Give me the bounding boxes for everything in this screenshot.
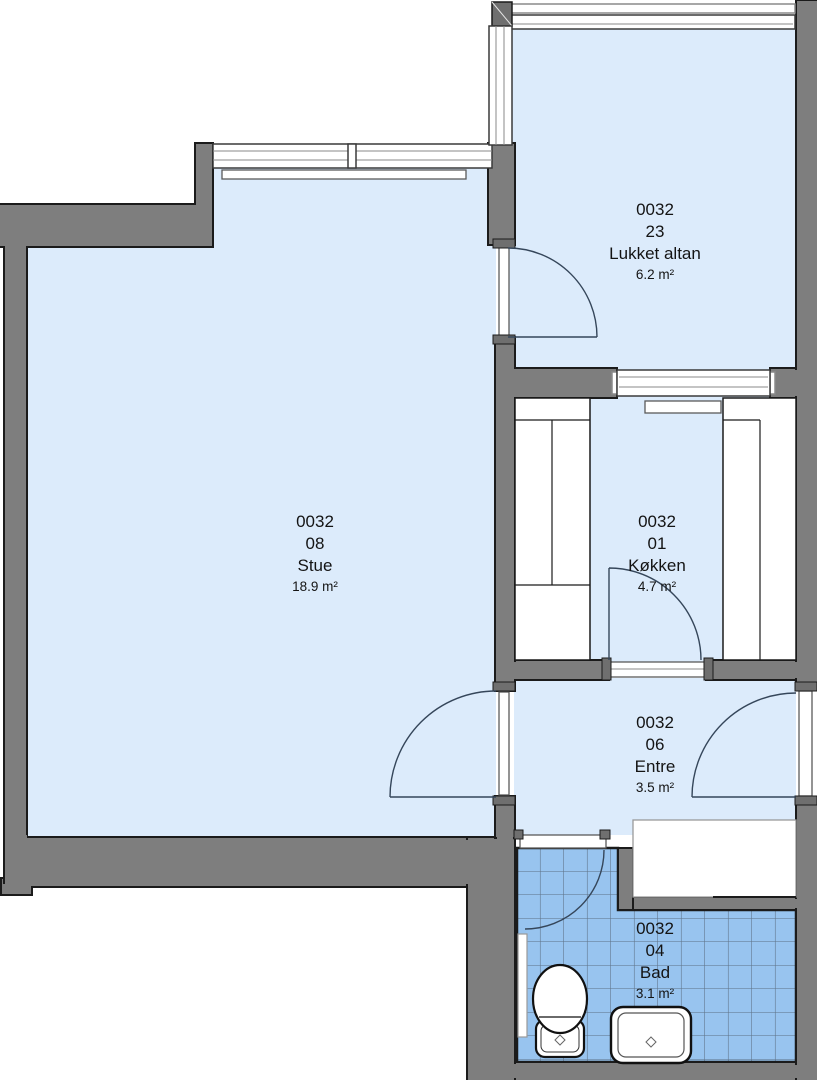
floor-plan: 0032 23 Lukket altan 6.2 m² 0032 08 Stue…	[0, 0, 817, 1080]
room-area: 4.7 m²	[628, 577, 686, 596]
sink	[611, 1007, 691, 1063]
room-no: 01	[628, 533, 686, 555]
kitchen-counter-right	[723, 398, 796, 660]
kitchen-counter-left	[515, 398, 590, 660]
room-label-bad: 0032 04 Bad 3.1 m²	[636, 918, 674, 1003]
wall-bottom	[515, 1062, 817, 1080]
room-apartment-no: 0032	[292, 511, 338, 533]
room-no: 04	[636, 940, 674, 962]
room-no: 06	[635, 734, 676, 756]
altan-left-window	[489, 26, 512, 145]
room-label-entre: 0032 06 Entre 3.5 m²	[635, 712, 676, 797]
wall-left	[4, 247, 27, 880]
room-apartment-no: 0032	[635, 712, 676, 734]
altan-top-window	[492, 2, 795, 29]
bath-radiator	[518, 934, 527, 1037]
wall-bad-top	[618, 897, 796, 910]
room-apartment-no: 0032	[628, 511, 686, 533]
room-name: Bad	[636, 962, 674, 984]
room-label-stue: 0032 08 Stue 18.9 m²	[292, 511, 338, 596]
stue-radiator	[222, 170, 466, 179]
room-no: 23	[609, 221, 701, 243]
room-area: 18.9 m²	[292, 577, 338, 596]
room-apartment-no: 0032	[636, 918, 674, 940]
wall-kokken-entre-left	[515, 660, 609, 680]
room-area: 3.5 m²	[635, 778, 676, 797]
room-name: Lukket altan	[609, 243, 701, 265]
room-apartment-no: 0032	[609, 199, 701, 221]
wall-stue-kokken	[495, 398, 515, 660]
room-no: 08	[292, 533, 338, 555]
wall-stue-bottom	[4, 837, 467, 887]
room-area: 6.2 m²	[609, 265, 701, 284]
wall-top-left-arm	[0, 143, 213, 247]
stue-floor	[26, 166, 496, 838]
stue-window	[213, 144, 492, 179]
room-label-kokken: 0032 01 Køkken 4.7 m²	[628, 511, 686, 596]
altan-bottom-window	[612, 370, 775, 396]
room-area: 3.1 m²	[636, 984, 674, 1003]
room-label-lukket-altan: 0032 23 Lukket altan 6.2 m²	[609, 199, 701, 284]
room-name: Stue	[292, 555, 338, 577]
kokken-window-sill	[645, 401, 721, 413]
wall-right-lower	[796, 797, 817, 1080]
floor-plan-drawing	[0, 0, 817, 1080]
wardrobe	[633, 820, 796, 897]
wall-right-upper	[796, 0, 817, 690]
room-name: Entre	[635, 756, 676, 778]
room-name: Køkken	[628, 555, 686, 577]
wall-bad-left	[467, 837, 515, 1080]
wall-kokken-entre-right	[706, 660, 796, 680]
toilet	[533, 965, 587, 1057]
